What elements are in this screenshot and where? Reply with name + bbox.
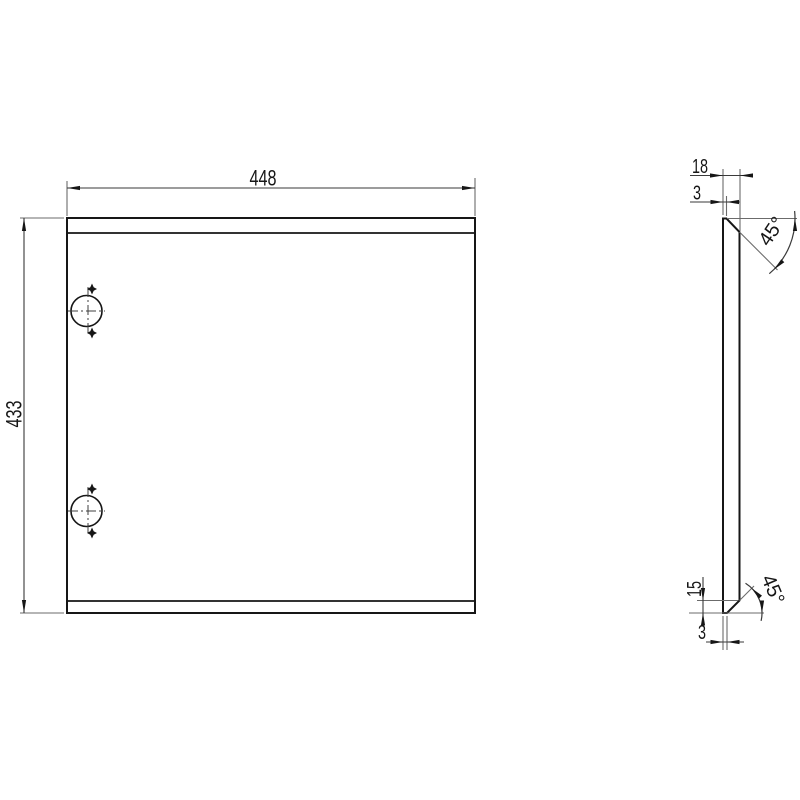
dim-bottom-edge-extension-lines bbox=[723, 616, 727, 650]
hole-centerlines bbox=[68, 287, 105, 536]
engineering-drawing: 448 433 bbox=[0, 0, 800, 800]
arrow-arc-end bbox=[752, 588, 762, 598]
dim-bottom-edge-label: 3 bbox=[698, 622, 706, 644]
dim-thickness-label: 18 bbox=[692, 156, 708, 178]
arrow-left bbox=[727, 200, 740, 204]
arrow-left bbox=[740, 173, 753, 177]
arrow-right bbox=[462, 186, 475, 190]
dim-height-433: 433 bbox=[2, 218, 65, 613]
dim-bottom-edge-3: 3 bbox=[698, 616, 744, 650]
panel-outline bbox=[67, 218, 475, 613]
dim-width-label: 448 bbox=[250, 166, 277, 191]
dim-width-448: 448 bbox=[67, 166, 475, 217]
dim-bottom-chamfer-extension-lines bbox=[689, 601, 764, 614]
arrow-right bbox=[711, 640, 724, 644]
side-view-outline bbox=[723, 219, 740, 614]
dim-bottom-chamfer-label: 15 bbox=[684, 581, 706, 597]
arrow-left bbox=[727, 640, 740, 644]
dim-bottom-angle-arc bbox=[746, 583, 763, 621]
arrow-left bbox=[67, 186, 80, 190]
arrow-up bbox=[22, 218, 26, 231]
arrow-right bbox=[711, 200, 724, 204]
front-view: 448 433 bbox=[2, 166, 476, 614]
dim-top-edge-3: 3 bbox=[690, 183, 740, 217]
arrow-arc-end bbox=[774, 259, 784, 269]
arrow-arc-end bbox=[760, 601, 764, 614]
dim-thickness-extension-lines bbox=[723, 169, 740, 231]
arrow-down bbox=[22, 600, 26, 613]
arrow-right bbox=[710, 173, 723, 177]
angle-arc bbox=[746, 583, 763, 621]
dim-height-label: 433 bbox=[2, 401, 27, 428]
profile-outline bbox=[723, 219, 740, 614]
dim-height-extension-lines bbox=[20, 218, 64, 613]
dim-top-edge-label: 3 bbox=[693, 183, 701, 205]
dim-top-angle-45: 45° bbox=[727, 211, 797, 274]
side-profile-view: 18 3 bbox=[684, 156, 797, 650]
front-view-outlines bbox=[67, 218, 475, 613]
arrow-arc-end bbox=[793, 219, 797, 232]
drawing-canvas: 448 433 bbox=[0, 0, 800, 800]
